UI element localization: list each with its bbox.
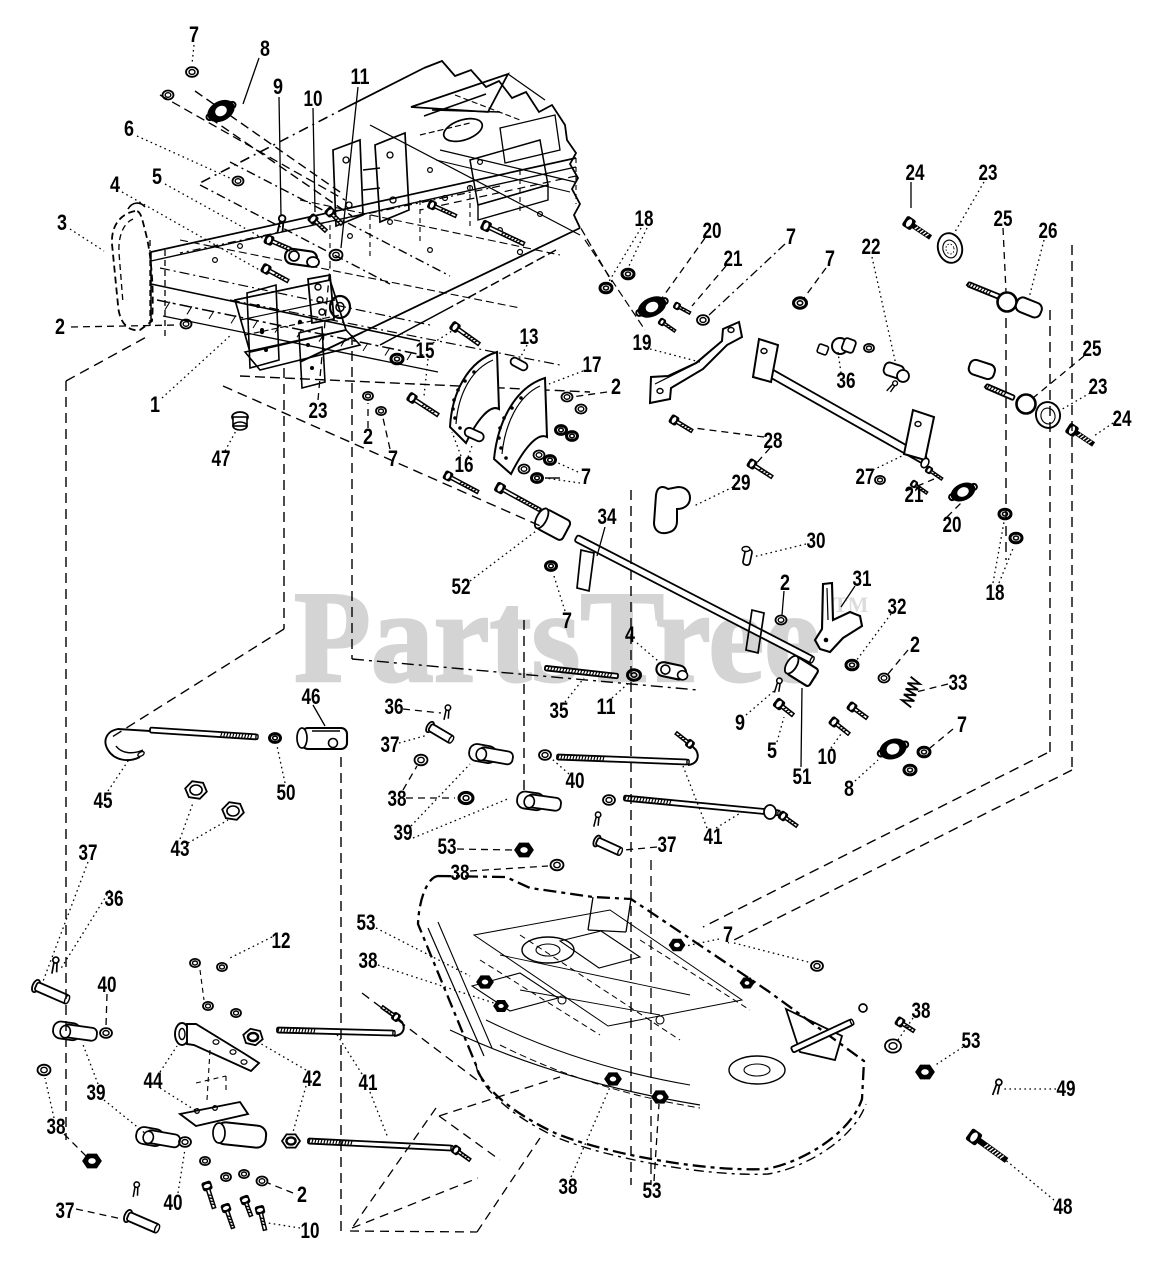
- svg-text:37: 37: [79, 840, 98, 865]
- svg-text:43: 43: [171, 836, 190, 861]
- svg-text:31: 31: [853, 566, 872, 591]
- svg-text:10: 10: [301, 1218, 320, 1243]
- svg-text:23: 23: [309, 398, 328, 423]
- svg-text:7: 7: [189, 22, 199, 47]
- svg-text:40: 40: [566, 768, 585, 793]
- svg-text:8: 8: [844, 776, 854, 801]
- svg-text:53: 53: [962, 1028, 981, 1053]
- svg-text:39: 39: [394, 820, 413, 845]
- svg-text:7: 7: [562, 608, 572, 633]
- svg-text:7: 7: [957, 712, 967, 737]
- svg-text:25: 25: [994, 206, 1013, 231]
- svg-text:2: 2: [780, 570, 790, 595]
- svg-text:36: 36: [837, 368, 856, 393]
- svg-text:25: 25: [1083, 336, 1102, 361]
- svg-text:38: 38: [359, 948, 378, 973]
- svg-text:4: 4: [110, 172, 121, 197]
- svg-text:9: 9: [273, 74, 283, 99]
- svg-text:40: 40: [98, 972, 117, 997]
- svg-text:20: 20: [703, 218, 722, 243]
- svg-text:5: 5: [767, 738, 777, 763]
- svg-text:15: 15: [416, 338, 435, 363]
- svg-text:20: 20: [943, 512, 962, 537]
- svg-text:23: 23: [1089, 374, 1108, 399]
- svg-text:10: 10: [818, 744, 837, 769]
- svg-text:7: 7: [581, 464, 591, 489]
- svg-text:1: 1: [150, 392, 160, 417]
- svg-text:51: 51: [793, 764, 812, 789]
- svg-text:2: 2: [55, 314, 65, 339]
- svg-text:4: 4: [625, 622, 636, 647]
- svg-text:2: 2: [297, 1182, 307, 1207]
- svg-text:21: 21: [724, 246, 743, 271]
- svg-text:53: 53: [438, 834, 457, 859]
- svg-text:38: 38: [559, 1174, 578, 1199]
- svg-text:12: 12: [272, 928, 291, 953]
- svg-text:26: 26: [1039, 218, 1058, 243]
- svg-text:9: 9: [735, 710, 745, 735]
- svg-text:37: 37: [381, 732, 400, 757]
- svg-text:17: 17: [583, 352, 602, 377]
- svg-text:30: 30: [807, 528, 826, 553]
- svg-text:22: 22: [862, 234, 881, 259]
- svg-text:49: 49: [1057, 1076, 1076, 1101]
- svg-text:38: 38: [912, 998, 931, 1023]
- svg-text:27: 27: [856, 464, 875, 489]
- svg-text:3: 3: [57, 210, 67, 235]
- svg-text:24: 24: [906, 160, 926, 185]
- svg-text:36: 36: [105, 886, 124, 911]
- svg-text:2: 2: [910, 632, 920, 657]
- svg-text:7: 7: [786, 224, 796, 249]
- svg-text:11: 11: [351, 64, 370, 89]
- svg-text:53: 53: [357, 910, 376, 935]
- svg-text:6: 6: [124, 116, 134, 141]
- svg-text:24: 24: [1113, 406, 1133, 431]
- svg-text:19: 19: [633, 330, 652, 355]
- svg-text:47: 47: [212, 446, 231, 471]
- svg-text:53: 53: [643, 1178, 662, 1203]
- svg-text:52: 52: [452, 574, 471, 599]
- svg-text:40: 40: [164, 1190, 183, 1215]
- svg-text:18: 18: [635, 206, 654, 231]
- svg-text:5: 5: [152, 164, 162, 189]
- svg-text:37: 37: [658, 832, 677, 857]
- svg-text:48: 48: [1054, 1194, 1073, 1219]
- svg-text:38: 38: [47, 1114, 66, 1139]
- svg-text:8: 8: [260, 36, 270, 61]
- svg-text:34: 34: [598, 504, 618, 529]
- svg-text:29: 29: [732, 470, 751, 495]
- svg-text:46: 46: [302, 684, 321, 709]
- svg-text:50: 50: [277, 780, 296, 805]
- svg-text:21: 21: [905, 482, 924, 507]
- svg-text:23: 23: [979, 160, 998, 185]
- svg-text:13: 13: [520, 324, 539, 349]
- svg-text:7: 7: [723, 922, 733, 947]
- svg-text:39: 39: [87, 1080, 106, 1105]
- svg-text:7: 7: [825, 246, 835, 271]
- svg-text:7: 7: [388, 446, 398, 471]
- svg-text:45: 45: [94, 788, 113, 813]
- svg-text:38: 38: [451, 860, 470, 885]
- svg-text:37: 37: [56, 1198, 75, 1223]
- svg-text:28: 28: [764, 428, 783, 453]
- svg-text:18: 18: [986, 580, 1005, 605]
- svg-text:10: 10: [304, 86, 323, 111]
- svg-text:2: 2: [611, 374, 621, 399]
- svg-text:16: 16: [455, 452, 474, 477]
- svg-text:36: 36: [385, 694, 404, 719]
- svg-text:33: 33: [949, 670, 968, 695]
